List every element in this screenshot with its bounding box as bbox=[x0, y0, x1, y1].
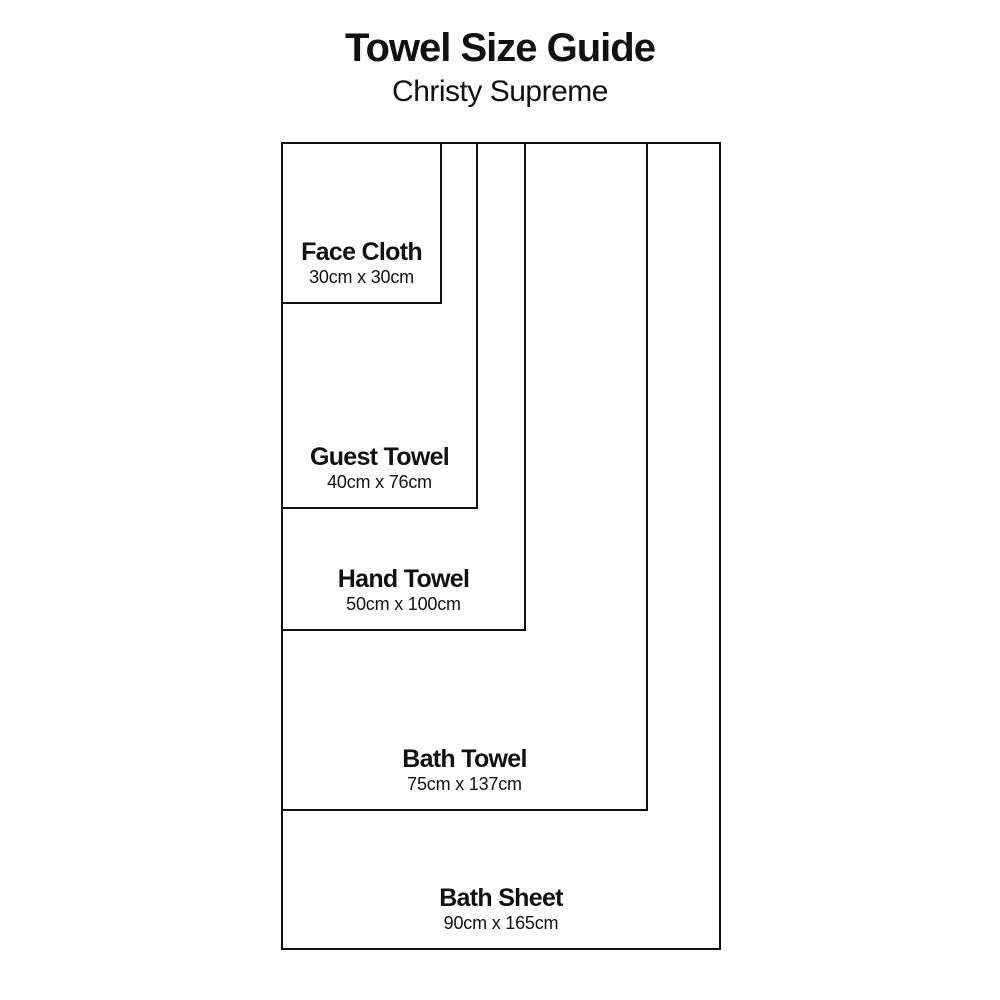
page-title: Towel Size Guide bbox=[0, 28, 1000, 68]
face-cloth-label: Face Cloth 30cm x 30cm bbox=[283, 239, 440, 288]
bath-sheet-dimensions: 90cm x 165cm bbox=[283, 913, 719, 934]
bath-towel-label: Bath Towel 75cm x 137cm bbox=[283, 746, 646, 795]
bath-sheet-label: Bath Sheet 90cm x 165cm bbox=[283, 885, 719, 934]
bath-towel-name: Bath Towel bbox=[283, 746, 646, 774]
hand-towel-label: Hand Towel 50cm x 100cm bbox=[283, 566, 524, 615]
face-cloth-name: Face Cloth bbox=[283, 239, 440, 267]
guest-towel-dimensions: 40cm x 76cm bbox=[283, 472, 476, 493]
header: Towel Size Guide Christy Supreme bbox=[0, 28, 1000, 108]
face-cloth-rect: Face Cloth 30cm x 30cm bbox=[281, 142, 442, 304]
bath-towel-dimensions: 75cm x 137cm bbox=[283, 774, 646, 795]
hand-towel-dimensions: 50cm x 100cm bbox=[283, 594, 524, 615]
guest-towel-name: Guest Towel bbox=[283, 444, 476, 472]
page-subtitle: Christy Supreme bbox=[0, 75, 1000, 108]
face-cloth-dimensions: 30cm x 30cm bbox=[283, 267, 440, 288]
guest-towel-label: Guest Towel 40cm x 76cm bbox=[283, 444, 476, 493]
hand-towel-name: Hand Towel bbox=[283, 566, 524, 594]
bath-sheet-name: Bath Sheet bbox=[283, 885, 719, 913]
towel-size-guide-infographic: Towel Size Guide Christy Supreme Bath Sh… bbox=[0, 0, 1000, 1000]
